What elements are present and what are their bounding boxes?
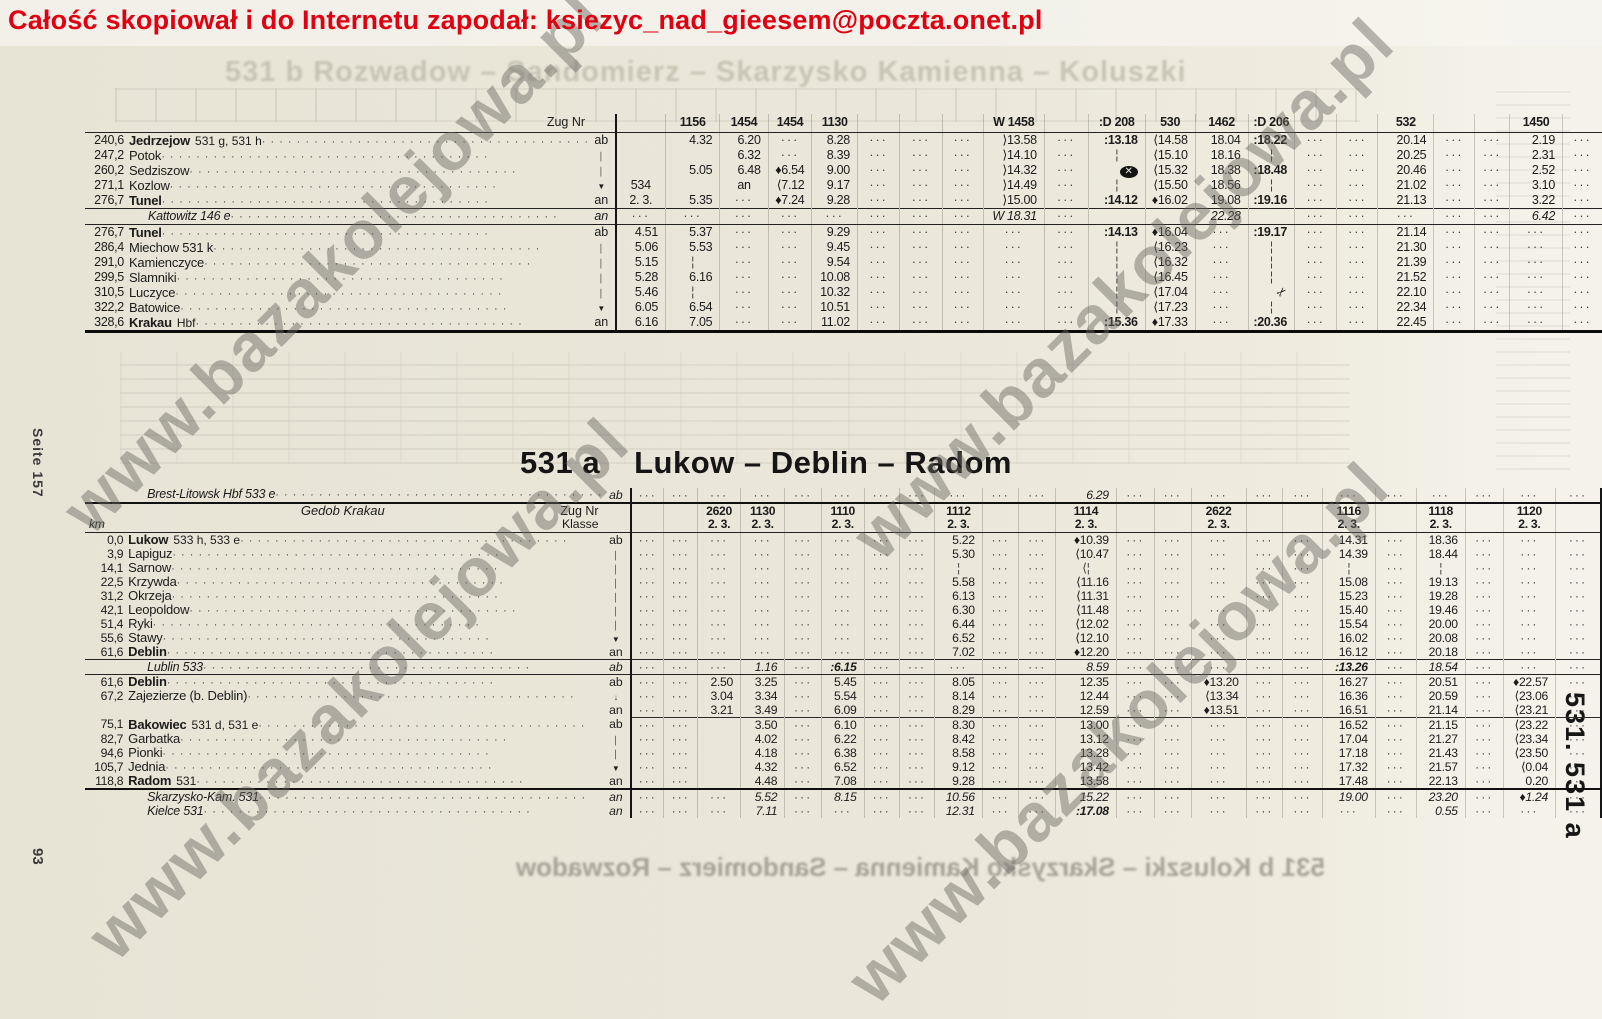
train-number-cell [900, 114, 942, 133]
time-cell: ··· [1375, 703, 1416, 718]
time-cell: ··· [1019, 675, 1056, 690]
time-cell: ··· [1246, 675, 1283, 690]
time-value: 5.53 [689, 240, 712, 254]
time-cell: ··· [864, 760, 899, 774]
time-cell: ⟩14.10 [983, 148, 1044, 163]
time-cell: ··· [1295, 178, 1337, 193]
time-cell: ··· [1375, 789, 1416, 804]
time-cell: ··· [1116, 533, 1154, 548]
time-cell: ··· [698, 789, 741, 804]
time-cell: ··· [1337, 133, 1378, 149]
time-cell: ··· [785, 617, 822, 631]
time-cell: 8.39 [812, 148, 857, 163]
time-cell: 8.15 [821, 789, 864, 804]
time-cell: ··· [1465, 561, 1503, 575]
time-cell: ··· [821, 804, 864, 818]
time-value: 9.12 [952, 760, 975, 774]
time-value: 18.36 [1429, 533, 1458, 547]
dot-leader [177, 576, 603, 588]
time-cell: 16.02 [1322, 631, 1375, 645]
time-cell: ⟩15.00 [983, 193, 1044, 209]
time-cell: 18.44 [1416, 547, 1465, 561]
km-cell [85, 789, 125, 804]
station-cell: Leopoldow [125, 603, 602, 617]
stop-marker: ▼ [589, 300, 616, 315]
station-name: Lublin 533 [125, 661, 203, 674]
time-cell: ··· [1154, 533, 1191, 548]
time-cell: ··· [1019, 488, 1056, 503]
time-value: 3.49 [755, 703, 778, 717]
station-cell: Sedziszow [126, 163, 589, 178]
time-cell: ··· [900, 285, 942, 300]
time-cell: 21.39 [1378, 255, 1434, 270]
time-cell: ··· [785, 718, 822, 733]
time-cell: ··· [1044, 148, 1088, 163]
time-cell: ··· [899, 746, 934, 760]
km-cell: 276,7 [85, 225, 126, 241]
time-cell: ··· [1154, 746, 1191, 760]
time-cell: ··· [631, 617, 664, 631]
time-cell: ··· [1154, 589, 1191, 603]
time-cell: ··· [698, 561, 741, 575]
time-cell: ··· [1295, 285, 1337, 300]
time-cell: ··· [740, 617, 784, 631]
time-cell: ··· [698, 617, 741, 631]
time-value: 21.14 [1397, 225, 1427, 239]
time-cell: ··· [899, 703, 934, 718]
km-cell: 55,6 [85, 631, 125, 645]
time-value: 6.20 [737, 133, 760, 147]
time-cell: 5.15 [616, 255, 666, 270]
time-cell: ··· [1375, 589, 1416, 603]
time-cell: ··· [631, 645, 664, 660]
dot-leader [172, 590, 603, 602]
station-name: Slamniki [126, 271, 177, 285]
time-cell [616, 133, 666, 149]
time-cell: ··· [864, 660, 899, 675]
time-cell: ··· [1465, 760, 1503, 774]
time-cell: 8.14 [935, 689, 983, 703]
station-cell: Jedrzejow531 g, 531 h [126, 133, 589, 149]
time-cell: 5.35 [665, 193, 719, 209]
time-cell: ··· [864, 703, 899, 718]
time-cell: ··· [1322, 804, 1375, 818]
time-value: 19.13 [1429, 575, 1458, 589]
time-cell: 10.51 [812, 300, 857, 315]
time-cell: ··· [785, 533, 822, 548]
time-cell: ··· [1246, 718, 1283, 733]
time-cell: ··· [1465, 533, 1503, 548]
time-cell: ··· [664, 645, 698, 660]
time-cell: ··· [1246, 746, 1283, 760]
train-number-cell: 1450 [1510, 114, 1563, 133]
time-value: ⟨7.12 [777, 178, 805, 192]
time-cell: 8.28 [812, 133, 857, 149]
stop-marker: │ [589, 240, 616, 255]
time-cell: ··· [942, 163, 983, 178]
km-cell [85, 209, 126, 225]
time-value: 4.02 [755, 732, 778, 746]
time-cell: 9.45 [812, 240, 857, 255]
time-cell: ··· [1116, 789, 1154, 804]
time-cell: ··· [631, 703, 664, 718]
km-cell: 286,4 [85, 240, 126, 255]
time-cell: ··· [900, 133, 942, 149]
km-cell: 22,5 [85, 575, 125, 589]
class-cell [785, 518, 822, 533]
km-cell: 276,7 [85, 193, 126, 209]
time-cell: ⟨14.58 [1145, 133, 1195, 149]
time-value: 20.51 [1429, 675, 1458, 689]
time-cell: ⟨0.04 [1503, 760, 1555, 774]
km-cell: 322,2 [85, 300, 126, 315]
station-cell: KrakauHbf [126, 315, 589, 332]
station-name: Deblin [125, 645, 167, 659]
time-cell: :6.15 [821, 660, 864, 675]
time-value: 21.14 [1429, 703, 1458, 717]
time-cell: ··· [983, 270, 1044, 285]
direction-arrow-icon: │ [599, 244, 604, 253]
time-value: 5.28 [635, 270, 658, 284]
time-cell: ··· [631, 718, 664, 733]
time-value: 6.16 [635, 315, 658, 329]
time-cell: ··· [942, 225, 983, 241]
time-cell: ··· [1510, 255, 1563, 270]
time-cell: 21.57 [1416, 760, 1465, 774]
time-cell: ··· [1375, 575, 1416, 589]
time-cell: ··· [1295, 300, 1337, 315]
time-cell: ··· [1246, 774, 1283, 789]
time-cell: 18.54 [1416, 660, 1465, 675]
time-cell: ··· [1434, 300, 1475, 315]
time-cell: 21.30 [1378, 240, 1434, 255]
time-cell: ¦ [1088, 178, 1145, 193]
time-cell: ··· [821, 575, 864, 589]
direction-arrow-icon: │ [599, 274, 604, 283]
time-value: 9.00 [827, 163, 850, 177]
time-cell: ··· [1555, 760, 1601, 774]
time-cell: ⟨23.21 [1503, 703, 1555, 718]
time-cell: 21.43 [1416, 746, 1465, 760]
dot-leader [204, 257, 589, 269]
train-number-cell: 1156 [665, 114, 719, 133]
km-cell: 291,0 [85, 255, 126, 270]
station-name: Tunel [126, 194, 162, 208]
time-cell: ··· [1116, 561, 1154, 575]
km-cell: 328,6 [85, 315, 126, 332]
time-cell: ··· [1019, 660, 1056, 675]
class-cell [982, 518, 1019, 533]
time-value: 22.10 [1397, 285, 1427, 299]
train-number-cell: 1130 [812, 114, 857, 133]
time-cell: 5.05 [665, 163, 719, 178]
time-value: 5.15 [635, 255, 658, 269]
time-cell: ··· [1375, 645, 1416, 660]
time-cell: ··· [1555, 789, 1601, 804]
time-cell: ··· [1375, 774, 1416, 789]
timetable-row: 271,1Kozlow▼534an⟨7.129.17·········⟩14.4… [85, 178, 1602, 193]
time-cell: ··· [1019, 589, 1056, 603]
time-value: 20.00 [1429, 617, 1458, 631]
time-cell: ··· [1434, 285, 1475, 300]
time-cell: ··· [821, 547, 864, 561]
timetable-row: 260,2Sedziszow│5.056.48♦6.549.00········… [85, 163, 1602, 178]
time-cell: ··· [864, 804, 899, 818]
class-cell: 2. 3. [698, 518, 741, 533]
km-cell: 51,4 [85, 617, 125, 631]
time-cell: ··· [1019, 718, 1056, 733]
station-name: Stawy [125, 631, 162, 645]
time-cell: ··· [982, 760, 1019, 774]
time-value: 3.21 [710, 703, 733, 717]
time-cell: ··· [982, 689, 1019, 703]
time-cell: ··· [1295, 193, 1337, 209]
time-cell: ··· [1295, 240, 1337, 255]
time-cell: :14.12 [1088, 193, 1145, 209]
time-cell: ··· [631, 575, 664, 589]
time-cell: ··· [664, 689, 698, 703]
station-name: Krakau [126, 316, 172, 330]
time-cell: ♦17.33 [1145, 315, 1195, 332]
time-cell: ··· [785, 645, 822, 660]
time-cell: ··· [1562, 255, 1602, 270]
time-cell: ··· [698, 589, 741, 603]
time-cell: ··· [1434, 255, 1475, 270]
class-cell: 2. 3. [740, 518, 784, 533]
train-number-cell: 1454 [768, 114, 812, 133]
time-value: 3.34 [755, 689, 778, 703]
time-cell: ··· [821, 617, 864, 631]
stop-marker: │ [603, 575, 632, 589]
time-value: 2.19 [1532, 133, 1555, 147]
time-cell: ··· [857, 133, 899, 149]
time-cell: :19.17 [1248, 225, 1294, 241]
dot-leader [259, 791, 603, 803]
train-number-cell: 1454 [720, 114, 768, 133]
time-cell: ··· [983, 255, 1044, 270]
station-cell: Krzywda [125, 575, 602, 589]
time-value: ⟨10.47 [1075, 547, 1108, 561]
station-name: Jedrzejow [126, 134, 190, 148]
time-value: ✂ [1274, 284, 1290, 300]
time-cell: 6.52 [935, 631, 983, 645]
time-cell: ··· [698, 645, 741, 660]
time-cell: ··· [1116, 575, 1154, 589]
km-cell: 14,1 [85, 561, 125, 575]
time-cell: ··· [698, 533, 741, 548]
time-cell: ··· [1295, 270, 1337, 285]
time-value: ♦7.24 [775, 193, 804, 207]
timetable-row: 3,9Lapiguz│························5.30·… [85, 547, 1601, 561]
time-cell: ··· [857, 315, 899, 332]
time-cell: ¦ [665, 255, 719, 270]
time-cell: 6.22 [821, 732, 864, 746]
time-cell: ··· [1465, 660, 1503, 675]
time-cell: 15.54 [1322, 617, 1375, 631]
time-cell: ··· [1283, 660, 1323, 675]
time-value: 19.00 [1339, 790, 1368, 804]
time-cell: ··· [740, 575, 784, 589]
time-cell: ··· [900, 300, 942, 315]
time-cell: ··· [1503, 575, 1555, 589]
time-value: 5.30 [952, 547, 975, 561]
time-value: 6.22 [834, 732, 857, 746]
stop-marker: │ [603, 603, 632, 617]
time-cell: 3.34 [740, 689, 784, 703]
time-cell: 5.30 [935, 547, 983, 561]
time-cell: 17.04 [1322, 732, 1375, 746]
time-cell: ··· [899, 575, 934, 589]
time-cell: ··· [857, 270, 899, 285]
time-cell: ··· [631, 746, 664, 760]
time-cell: W 18.31 [983, 209, 1044, 225]
time-cell: ··· [785, 789, 822, 804]
stop-marker: an [589, 315, 616, 332]
time-cell: 15.40 [1322, 603, 1375, 617]
time-cell: 6.54 [665, 300, 719, 315]
time-value: 8.39 [827, 148, 850, 162]
time-cell: ··· [1375, 603, 1416, 617]
time-cell: ··· [768, 255, 812, 270]
time-value: ⟨11.48 [1076, 603, 1109, 617]
time-cell: ⟨15.10 [1145, 148, 1195, 163]
time-value: ♦10.39 [1074, 533, 1109, 547]
time-cell: ··· [768, 148, 812, 163]
time-cell: ··· [720, 193, 768, 209]
time-value: 3.50 [755, 718, 778, 732]
train-number-cell: :D 208 [1088, 114, 1145, 133]
time-cell: 15.08 [1322, 575, 1375, 589]
timetable-row: Skarzysko-Kam. 531an·········5.52···8.15… [85, 789, 1601, 804]
time-value: ⟨23.21 [1514, 703, 1547, 717]
time-value: 22.34 [1397, 300, 1427, 314]
time-cell: ··· [1044, 193, 1088, 209]
stop-marker: ab [603, 675, 632, 690]
time-cell: ··· [664, 488, 698, 503]
time-cell: ··· [1246, 488, 1283, 503]
time-cell: 0.55 [1416, 804, 1465, 818]
stop-marker: ab [603, 533, 632, 548]
time-cell: ··· [1503, 804, 1555, 818]
time-cell: ··· [1019, 645, 1056, 660]
time-cell: ··· [1465, 689, 1503, 703]
time-cell: ··· [857, 209, 899, 225]
time-cell: 6.48 [720, 163, 768, 178]
time-cell: 21.27 [1416, 732, 1465, 746]
time-cell: ··· [631, 774, 664, 789]
time-cell: ··· [1283, 703, 1323, 718]
time-cell: ··· [864, 732, 899, 746]
time-cell: ··· [1191, 804, 1246, 818]
station-name: Kattowitz 146 e [126, 210, 230, 223]
bleedthrough-title-bottom: 531 b Koluszki – Skarzysko Kamienna – Sa… [235, 852, 1325, 883]
time-value: 20.14 [1397, 133, 1427, 147]
time-cell: ··· [1465, 645, 1503, 660]
direction-arrow-icon: │ [613, 750, 618, 759]
time-cell: ··· [664, 617, 698, 631]
time-cell: 7.11 [740, 804, 784, 818]
km-cell: 75,1 [85, 718, 125, 733]
time-cell: ⟨12.10 [1056, 631, 1117, 645]
station-name: Kamienczyce [126, 256, 204, 270]
time-cell: ··· [982, 561, 1019, 575]
time-cell: ··· [900, 209, 942, 225]
time-cell: ··· [1375, 547, 1416, 561]
time-value: 16.12 [1339, 645, 1368, 659]
time-value: 22.45 [1397, 315, 1427, 329]
time-value: 8.15 [834, 790, 857, 804]
direction-arrow-icon: │ [613, 736, 618, 745]
time-value: W 18.31 [992, 209, 1036, 223]
time-value: 21.13 [1397, 193, 1427, 207]
time-cell: ··· [900, 225, 942, 241]
time-cell: 17.18 [1322, 746, 1375, 760]
direction-arrow-icon: │ [613, 579, 618, 588]
time-cell: ··· [857, 148, 899, 163]
time-cell: 9.17 [812, 178, 857, 193]
time-cell: ⟨7.12 [768, 178, 812, 193]
time-cell: ··· [720, 255, 768, 270]
time-cell: :20.36 [1248, 315, 1294, 332]
time-cell: ··· [1434, 148, 1475, 163]
time-cell: ··· [857, 225, 899, 241]
time-cell: 17.32 [1322, 760, 1375, 774]
time-cell: ✂ [1248, 285, 1294, 300]
time-value: 5.22 [952, 533, 975, 547]
time-cell: ··· [864, 603, 899, 617]
time-cell: 21.13 [1378, 193, 1434, 209]
time-cell: ··· [1246, 660, 1283, 675]
time-cell: 5.46 [616, 285, 666, 300]
time-cell: ♦12.20 [1056, 645, 1117, 660]
time-value: 20.59 [1429, 689, 1458, 703]
time-value: 6.38 [834, 746, 857, 760]
time-cell: ··· [1044, 225, 1088, 241]
time-cell: ··· [942, 178, 983, 193]
time-cell: ··· [1378, 209, 1434, 225]
time-cell: ··· [1154, 774, 1191, 789]
time-value: 18.44 [1429, 547, 1458, 561]
time-value: 21.52 [1397, 270, 1427, 284]
time-cell: ··· [899, 718, 934, 733]
time-cell: ··· [1246, 732, 1283, 746]
time-cell: 22.45 [1378, 315, 1434, 332]
km-cell: 61,6 [85, 645, 125, 660]
class-cell: 2. 3. [1056, 518, 1117, 533]
time-cell: ··· [631, 533, 664, 548]
time-cell: ··· [1510, 285, 1563, 300]
direction-arrow-icon: ↓ [614, 693, 618, 702]
train-number-cell: 532 [1378, 114, 1434, 133]
time-cell: ⟩14.32 [983, 163, 1044, 178]
time-value: ⟨23.34 [1514, 732, 1547, 746]
direction-arrow-icon: │ [599, 289, 604, 298]
time-cell: ··· [1434, 193, 1475, 209]
time-cell: ··· [900, 178, 942, 193]
time-cell: 4.32 [740, 760, 784, 774]
time-cell: ··· [1555, 689, 1601, 703]
time-cell: ··· [1555, 774, 1601, 789]
time-cell: ··· [1295, 255, 1337, 270]
direction-arrow-icon: │ [613, 565, 618, 574]
stop-marker: an [603, 774, 632, 789]
time-cell: ··· [1375, 732, 1416, 746]
time-cell: ··· [740, 631, 784, 645]
time-value: 9.17 [827, 178, 850, 192]
time-value: ⟨12.10 [1075, 631, 1108, 645]
time-value: 2.52 [1532, 163, 1555, 177]
time-cell: ··· [982, 533, 1019, 548]
